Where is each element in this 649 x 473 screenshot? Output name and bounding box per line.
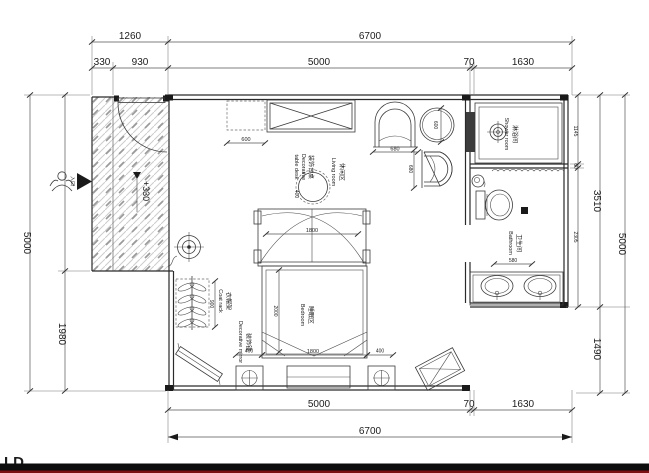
floor-plan-svg: +330 入口	[0, 0, 649, 473]
dim-right-1490: 1490	[591, 338, 602, 361]
cabinet-dim: 600	[224, 137, 268, 146]
entry-person-icon: 入口	[50, 172, 92, 191]
cabinet-dim-label: 600	[241, 137, 250, 143]
dim-bottom-5000: 5000	[308, 399, 331, 410]
dim-bottom-6700: 6700	[359, 426, 382, 437]
dim-top-330: 330	[94, 57, 111, 68]
side-table: 600	[420, 105, 454, 144]
dim-right-5000: 5000	[616, 233, 627, 256]
mirror-label-cn: 装饰镜	[245, 333, 253, 351]
dim-bottom-1630: 1630	[512, 399, 535, 410]
floor-drain-square	[521, 207, 528, 214]
bottom-bar: LD	[0, 454, 649, 473]
table-label-en2: table desk	[293, 154, 299, 179]
bed-canopy: 1800	[254, 209, 370, 266]
chair-width-dim: 680	[390, 147, 399, 153]
dim-top-70: 70	[463, 57, 475, 68]
coatrack-label-en: Coat rack	[217, 289, 223, 313]
living-room-label-cn: 休闲区	[338, 163, 346, 181]
bathroom-label-cn: 卫生间	[515, 234, 523, 252]
dim-left-5000: 5000	[21, 232, 32, 255]
coat-rack: 900 Coat rack 衣帽架	[176, 276, 233, 330]
entry-label: 入口	[69, 176, 75, 186]
coatrack-dim: 900	[208, 300, 214, 309]
coatrack-label-cn: 衣帽架	[225, 292, 233, 310]
bathroom-label-en: Bathroom	[507, 231, 513, 255]
entry-porch: +330	[92, 96, 173, 272]
dim-top-1630: 1630	[512, 57, 535, 68]
dim-top-5000: 5000	[308, 57, 331, 68]
shower-room: Shower room 淋浴间	[475, 103, 562, 163]
armchair-north	[373, 102, 418, 147]
living-room-label-en: Living room	[330, 158, 336, 187]
level-value: +330	[141, 181, 151, 201]
shower-door-panel	[466, 112, 475, 152]
towel-line	[492, 169, 564, 171]
toilet	[476, 190, 513, 220]
shower-label-en: Shower room	[503, 118, 509, 151]
shower-label-cn: 淋浴间	[511, 125, 519, 143]
dim-left-1980: 1980	[56, 323, 67, 346]
cabinet-crossed	[267, 100, 355, 132]
bathroom: Bathroom 卫生间 580	[470, 169, 564, 305]
table-label-cn: 装饰台桌	[307, 155, 315, 179]
bed: 2000 1800 Bedroom 睡眠区	[259, 266, 370, 358]
bed-width-dim: 1800	[307, 349, 319, 355]
mirror-label-en: Decorative mirror	[237, 321, 243, 363]
nightstand-right-dim: 400	[376, 349, 385, 355]
dim-right-3510: 3510	[591, 190, 602, 213]
toilet-paper-icon	[472, 175, 485, 187]
entry-arrow-icon	[77, 173, 92, 190]
cabinet-dashed	[227, 101, 265, 130]
floor-plan-page: +330 入口	[0, 0, 649, 473]
chair-height-dim: 680	[407, 165, 413, 174]
tilted-crossed-box	[415, 348, 464, 391]
decorative-table: table desk Decorative 装饰台桌 400	[293, 154, 330, 204]
black-bar	[0, 464, 649, 472]
dim-right-1145: 1145	[572, 126, 578, 137]
canopy-dim: 1800	[306, 228, 318, 234]
decorative-mirror: Decorative mirror 装饰镜	[171, 321, 252, 385]
dims-bottom: 5000 70 1630 6700	[165, 390, 575, 443]
dim-right-2305: 2305	[572, 231, 578, 242]
bedroom-label-en: Bedroom	[299, 304, 305, 327]
table-label-en1: Decorative	[300, 154, 306, 180]
floor-drain-symbol	[168, 232, 204, 267]
table-offset-dim: 400	[293, 190, 299, 199]
dim-top-930: 930	[132, 57, 149, 68]
dims-top: 1260 6700 330 930 5000 70 1630	[89, 31, 575, 95]
dim-top-6700: 6700	[359, 31, 382, 42]
bedroom-label-cn: 睡眠区	[307, 306, 315, 324]
vanity-dim: 580	[509, 258, 518, 264]
vanity	[470, 272, 563, 305]
foot-bench	[287, 366, 350, 388]
dim-bottom-70: 70	[463, 399, 475, 410]
armchair-west	[422, 150, 452, 188]
bed-length-dim: 2000	[272, 305, 278, 316]
chair-dims: 680 680	[370, 147, 421, 191]
dim-top-1260: 1260	[119, 31, 142, 42]
dims-right: 1145 60 2305 3510 1490 5000	[566, 92, 630, 395]
side-table-dim: 600	[432, 121, 438, 130]
dim-right-60: 60	[572, 163, 578, 169]
